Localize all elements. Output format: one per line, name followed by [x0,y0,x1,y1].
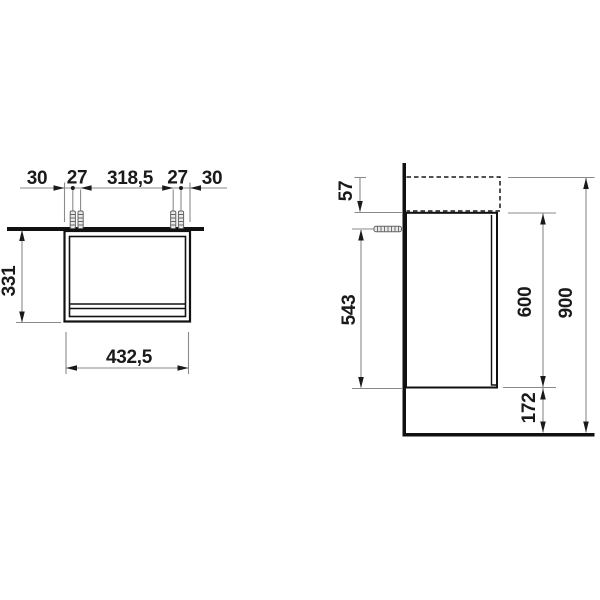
fixing-screw-2 [78,190,83,229]
fixing-screw-4 [178,190,183,229]
dim-label-overall-height: 900 [556,288,577,319]
dim-label-clearance: 172 [519,393,540,424]
dim-fixing-543: 543 [339,230,402,389]
fixing-screw-3 [171,190,176,229]
dim-height-331: 331 [0,230,61,323]
drawing-canvas: 30 27 318,5 27 30 331 432,5 [0,0,600,600]
dim-cabinet-600: 600 [503,213,556,388]
dim-label-pair-right: 27 [167,168,188,189]
dim-label-edge-left: 30 [27,168,48,189]
arrow-up-icon [358,230,364,241]
screw-ribs [378,226,399,231]
arrow-down-icon [358,377,364,388]
arrow-down-icon [583,422,589,433]
dim-width-432: 432,5 [66,332,189,374]
arrow-right-icon [178,365,189,371]
front-view: 30 27 318,5 27 30 331 432,5 [0,168,227,375]
arrow-left-icon [66,365,77,371]
screw-icon [78,211,83,229]
arrow-up-icon [540,389,546,400]
dim-label-width: 432,5 [106,347,153,368]
wall-fixing-screw [352,226,402,231]
arrow-down-icon [357,201,363,212]
screw-icon [178,211,183,229]
arrow-up-icon [583,178,589,189]
arrow-left-icon [190,185,201,191]
arrow-up-icon [19,230,25,241]
arrow-up-icon [540,214,546,225]
dim-label-height: 331 [0,265,20,297]
arrow-right-icon [54,185,65,191]
arrow-down-icon [540,376,546,387]
dim-clearance-172: 172 [519,388,546,433]
washbasin-dashed-outline [407,177,501,211]
screw-icon [171,211,176,229]
dim-chain-top: 30 27 318,5 27 30 [20,168,227,223]
arrow-down-icon [540,422,546,433]
fixing-screw-1 [70,190,75,229]
cabinet-side-outer [406,213,497,388]
dim-label-span: 318,5 [107,168,154,189]
arrow-down-icon [19,312,25,323]
dim-top-57: 57 [336,178,402,213]
screw-icon [70,211,75,229]
dim-label-top-offset: 57 [336,181,357,202]
dim-label-pair-left: 27 [67,168,88,189]
floor [403,433,595,437]
dim-label-edge-right: 30 [202,168,223,189]
side-view: 57 543 600 172 [336,163,595,437]
dim-label-fixing: 543 [339,295,360,326]
technical-drawing: 30 27 318,5 27 30 331 432,5 [0,0,600,600]
dim-label-cabinet-height: 600 [515,287,536,318]
